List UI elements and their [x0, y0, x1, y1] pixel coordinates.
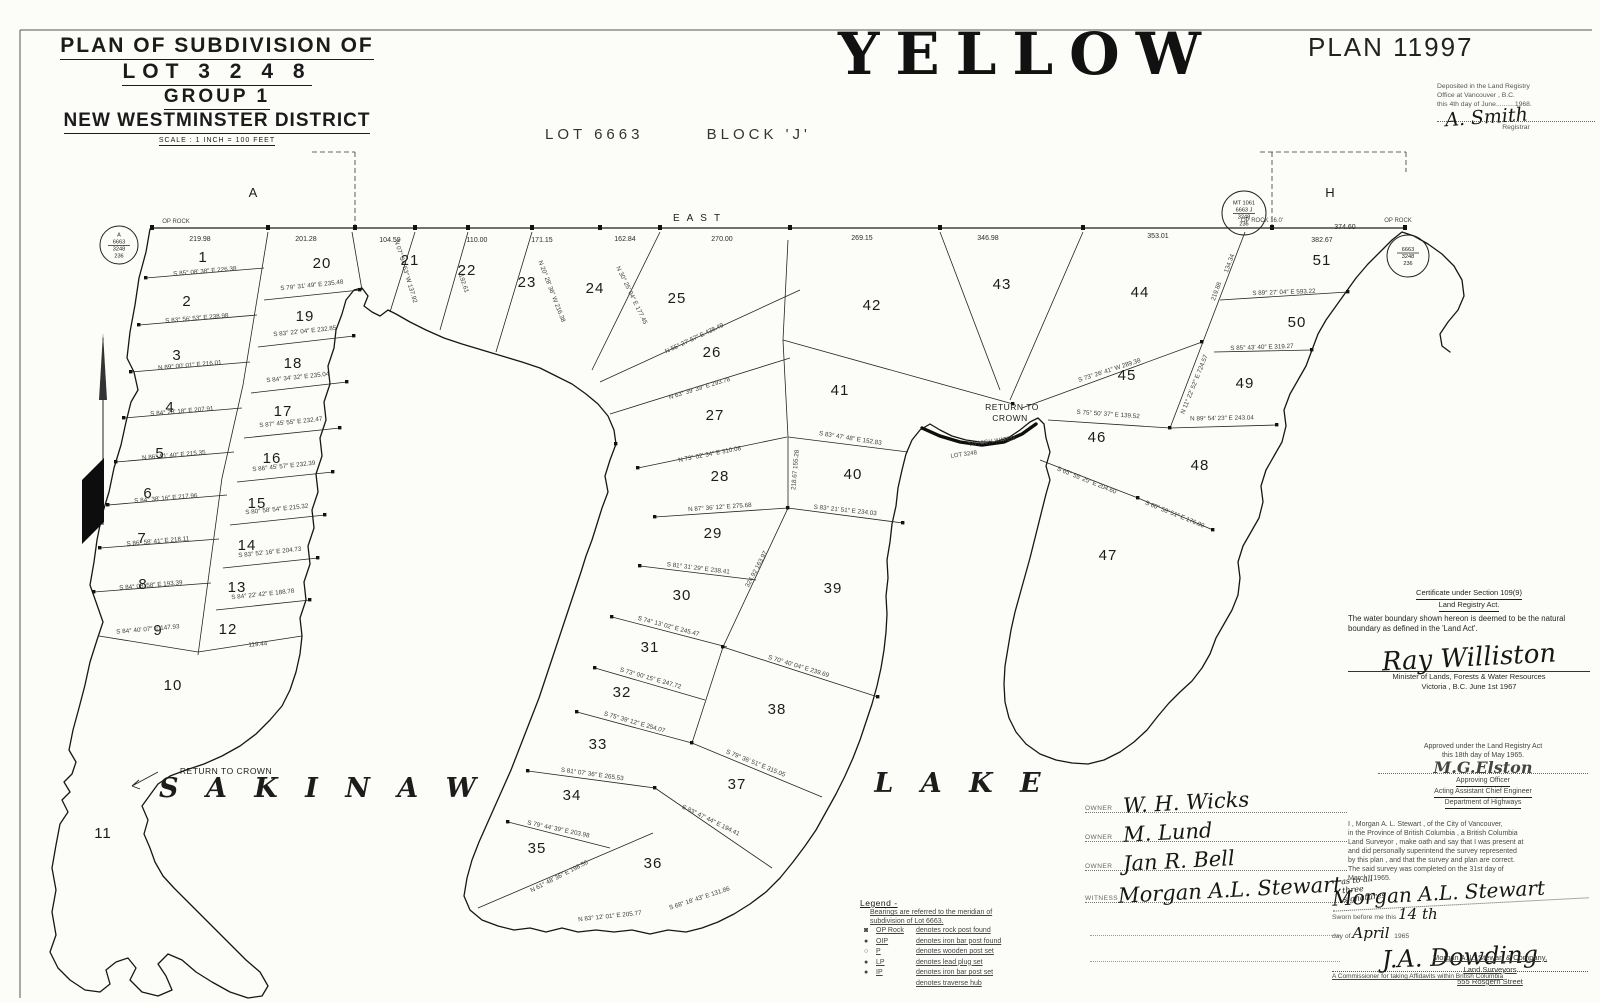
map-text: 353.01 [1147, 233, 1169, 240]
lot-number: 36 [644, 855, 663, 872]
surveyor-affidavit: I , Morgan A. L. Stewart , of the City o… [1348, 820, 1596, 883]
lot-number: 29 [704, 525, 723, 542]
map-text: N 73° 02' 34″ E 310.08 [678, 444, 743, 464]
certificate-body: The water boundary shown hereon is deeme… [1348, 614, 1590, 633]
map-text: OP ROCK [162, 219, 190, 225]
approval-line: Approved under the Land Registry Act [1378, 742, 1588, 751]
map-text: 236 [1403, 261, 1412, 267]
map-text: 382.67 [1311, 237, 1333, 244]
legend-symbol-icon: ○ [864, 947, 876, 958]
map-text: 218.67 155.28 [790, 449, 801, 490]
owner-signatures-block: OWNERW. H. WicksOWNERM. LundOWNERJan R. … [1085, 788, 1347, 907]
legend-abbr: LP [876, 958, 916, 969]
blank-signature-line [1090, 960, 1340, 962]
legend-note-2: subdivision of Lot 6663. [870, 917, 1040, 926]
map-text: S 79° 36' 51″ E 315.05 [725, 748, 787, 779]
lot-number: 24 [586, 280, 605, 297]
block-label: BLOCK 'J' [707, 126, 811, 143]
lot-number: 12 [219, 621, 238, 638]
affidavit-line: The said survey was completed on the 31s… [1348, 865, 1596, 874]
map-text: N 89° 54' 23″ E 243.04 [1190, 413, 1254, 422]
legend-row: ●OIPdenotes iron bar post found [864, 937, 1040, 948]
map-text: RETURN TO CROWN [180, 766, 272, 776]
plan-number: PLAN 11997 [1308, 32, 1474, 63]
lot-number: 41 [831, 382, 850, 399]
signature-row: OWNERW. H. Wicks [1085, 788, 1347, 813]
deposit-block: Deposited in the Land Registry Office at… [1437, 82, 1595, 132]
map-text: MT 1061 [1233, 201, 1255, 207]
legend-text: denotes iron bar post set [916, 968, 1040, 979]
legend-row: denotes traverse hub [864, 979, 1040, 990]
map-text: N 61° 48' 36″ E 198.56 [529, 858, 590, 894]
lot-number: 50 [1288, 314, 1307, 331]
deposit-line: Office at Vancouver , B.C. [1437, 91, 1595, 100]
certificate-act: Land Registry Act. [1439, 600, 1500, 612]
map-text: S 79° 31' 49″ E 235.48 [280, 278, 344, 293]
lot-number: 32 [613, 684, 632, 701]
map-text: H [1325, 185, 1334, 200]
map-text: N 63° 39' 39″ E 293.78 [668, 375, 732, 401]
map-text: 219.98 [189, 236, 211, 243]
legend-symbol-icon: ● [864, 958, 876, 969]
legend-text: denotes wooden post set [916, 947, 1040, 958]
map-text: 6663 [1402, 247, 1414, 253]
map-text: 346.98 [977, 235, 999, 242]
map-text: S 84° 40' 07″ E 147.93 [116, 622, 180, 636]
legend-block: Legend - Bearings are referred to the me… [860, 898, 1040, 989]
map-text: S 86° 58' 41″ E 218.11 [126, 534, 190, 547]
map-text: S 89° 27' 04″ E 593.22 [1252, 287, 1316, 297]
map-text: S 84° 28' 18″ E 207.91 [150, 404, 214, 418]
lot-number: 43 [993, 276, 1012, 293]
title-line-2: LOT 3 2 4 8 [122, 60, 311, 86]
lot-number: 31 [641, 639, 660, 656]
map-text: S 83° 22' 04″ E 232.85 [273, 324, 337, 339]
map-text: S 83° 47' 48″ E 152.83 [818, 429, 882, 447]
map-text: S 83° 56' 53″ E 238.98 [165, 311, 229, 325]
map-text: S 68° 18' 43″ E 131.86 [668, 884, 731, 911]
plan-big-title: YELLOW [838, 20, 1217, 88]
approval-role-1: Approving Officer [1456, 776, 1510, 787]
legend-abbr: P [876, 947, 916, 958]
signature-row: WITNESSMorgan A.L. Stewartas to all thre… [1085, 875, 1347, 903]
owner-signature: Jan R. Bell [1123, 840, 1348, 876]
title-block: PLAN OF SUBDIVISION OF LOT 3 2 4 8 GROUP… [34, 34, 400, 146]
lot-number: 38 [768, 701, 787, 718]
lot-number: 11 [94, 825, 112, 842]
title-line-3: GROUP 1 [164, 86, 270, 110]
map-text: 119.44 [248, 640, 268, 649]
signature-role-label: OWNER [1085, 805, 1123, 812]
lot-number: 42 [863, 297, 882, 314]
map-text: A [117, 233, 121, 239]
lot-label: LOT 6663 [545, 126, 643, 143]
legend-abbr [876, 979, 916, 990]
map-text: OP ROCK [1384, 218, 1412, 224]
legend-row: ●IPdenotes iron bar post set [864, 968, 1040, 979]
legend-row: ●LPdenotes lead plug set [864, 958, 1040, 969]
map-text: S 60° 58' 51″ E 176.80 [1144, 499, 1206, 530]
affidavit-line: I , Morgan A. L. Stewart , of the City o… [1348, 820, 1596, 829]
legend-symbol-icon: ● [864, 937, 876, 948]
lot-number: 44 [1131, 284, 1150, 301]
title-line-4: NEW WESTMINSTER DISTRICT [64, 110, 371, 134]
lot-number: 34 [563, 787, 582, 804]
lot-number: 47 [1099, 547, 1118, 564]
deposit-line: Deposited in the Land Registry [1437, 82, 1595, 91]
lot-number: 28 [711, 468, 730, 485]
legend-text: denotes traverse hub [916, 979, 1040, 990]
legend-abbr: OIP [876, 937, 916, 948]
legend-abbr: IP [876, 968, 916, 979]
company-name: Morgan A. L. Stewart & Company, [1390, 952, 1590, 964]
map-text: 3248 [1402, 254, 1414, 260]
map-text: CROWN [992, 413, 1028, 423]
sworn-year: 1965 [1394, 933, 1409, 940]
map-text: S 75° 50' 37″ E 139.52 [1076, 408, 1140, 420]
water-boundary-certificate: Certificate under Section 109(9) Land Re… [1348, 588, 1590, 692]
map-text: RETURN TO [985, 402, 1039, 412]
affidavit-line: and did personally superintend the surve… [1348, 847, 1596, 856]
map-text: N 20° 28' 36″ W 216.38 [536, 259, 567, 323]
highways-approval-block: Approved under the Land Registry Act thi… [1378, 742, 1588, 809]
legend-note-1: Bearings are referred to the meridian of [870, 908, 1040, 917]
map-text: 236 [114, 254, 123, 260]
legend-text: denotes lead plug set [916, 958, 1040, 969]
map-text: S 81° 31' 29″ E 238.41 [666, 560, 730, 576]
legend-text: denotes rock post found [916, 926, 1040, 937]
signature-row: OWNERM. Lund [1085, 817, 1347, 842]
lot-number: 25 [668, 290, 687, 307]
sworn-line-2: day of [1332, 933, 1352, 940]
map-text: N 11° 22' 52″ E 724.57 [1179, 353, 1210, 415]
lot-number: 51 [1313, 252, 1332, 269]
map-text: S 65° 55' 25″ E 204.60 [1056, 465, 1118, 496]
blank-signature-line [1090, 934, 1340, 936]
map-text: 219.88 [1210, 281, 1223, 302]
map-text: 6663 [113, 240, 125, 246]
map-text: 6663 J [1236, 208, 1253, 214]
legend-title: Legend - [860, 898, 1040, 908]
map-text: 324.92 163.97 [744, 549, 769, 588]
north-arrow-icon [82, 333, 107, 544]
lot-number: 33 [589, 736, 608, 753]
lot-number: 49 [1236, 375, 1255, 392]
company-address: 555 Rosgern Street [1390, 976, 1590, 988]
affidavit-line: Land Surveyor , make oath and say that I… [1348, 838, 1596, 847]
sworn-line-1: Sworn before me this [1332, 914, 1398, 921]
lot-number: 30 [673, 587, 692, 604]
map-text: N 30° 25' 04″ E 177.45 [614, 265, 649, 326]
map-text: EAST [673, 213, 727, 224]
lot-number: 17 [274, 403, 293, 420]
map-text: 269.15 [851, 235, 873, 242]
legend-rows: ◙OP Rockdenotes rock post found●OIPdenot… [860, 926, 1040, 989]
legend-row: ○Pdenotes wooden post set [864, 947, 1040, 958]
map-text: N 89° 00' 01″ E 216.01 [158, 358, 223, 372]
approval-role-3: Department of Highways [1445, 798, 1522, 809]
lot-number: 18 [284, 355, 303, 372]
certificate-date: Victoria , B.C. June 1st 1967 [1348, 682, 1590, 692]
map-text: N 86° 51' 40″ E 215.35 [142, 448, 207, 462]
owner-signature: Morgan A.L. Stewart [1118, 872, 1343, 908]
map-text: 110.00 [467, 237, 488, 244]
approving-officer-signature: M.G.Elston [1378, 763, 1588, 772]
map-text: S A K I N A W [159, 773, 485, 804]
survey-plan-page: { "header": { "title_line1": "PLAN OF SU… [0, 0, 1600, 1003]
legend-symbol-icon: ● [864, 968, 876, 979]
map-text: 270.00 [711, 236, 733, 243]
map-text: 201.28 [295, 236, 317, 243]
sworn-month-script: April [1352, 924, 1389, 942]
legend-abbr: OP Rock [876, 926, 916, 937]
signature-role-label: WITNESS [1085, 895, 1118, 902]
map-text: S 85° 08' 38″ E 226.38 [173, 264, 237, 278]
map-text: 162.84 [614, 236, 636, 243]
lot-number: 20 [313, 255, 332, 272]
lot-block-heading: LOT 6663 BLOCK 'J' [545, 126, 866, 143]
survey-company-block: Morgan A. L. Stewart & Company, Land Sur… [1390, 952, 1590, 988]
affidavit-line: by this plan , and that the survey and p… [1348, 856, 1596, 865]
map-text: S 75° 39' 12″ E 254.07 [603, 709, 667, 734]
lot-number: 26 [703, 344, 722, 361]
company-role: Land Surveyors [1390, 964, 1590, 976]
map-text: OP ROCK 16.0' [1241, 218, 1283, 224]
map-text: S 86° 45' 57″ E 232.39 [252, 459, 316, 474]
lot-number: 3 [172, 347, 181, 364]
lot-number: 40 [844, 466, 863, 483]
affidavit-line: in the Province of British Columbia , a … [1348, 829, 1596, 838]
map-text: 134.34 [1223, 253, 1236, 274]
signature-role-label: OWNER [1085, 834, 1123, 841]
lot-number: 48 [1191, 457, 1210, 474]
legend-row: ◙OP Rockdenotes rock post found [864, 926, 1040, 937]
title-line-1: PLAN OF SUBDIVISION OF [60, 34, 374, 60]
scale-note: SCALE : 1 INCH = 100 FEET [159, 137, 275, 146]
lot-number: 27 [706, 407, 725, 424]
signature-role-label: OWNER [1085, 863, 1123, 870]
lot-number: 1 [198, 249, 207, 266]
map-text: N 07° 34' 53″ W 137.92 [393, 239, 420, 304]
map-text: 374.60 [1334, 224, 1356, 231]
map-text: S 83° 47' 44″ E 194.41 [681, 803, 742, 838]
map-text: S 84° 08' 58″ E 193.39 [119, 578, 183, 592]
map-text: L A K E [873, 768, 1049, 799]
lot-number: 2 [182, 293, 191, 310]
certificate-title: Certificate under Section 109(9) [1416, 588, 1522, 600]
map-text: 3248 [113, 247, 125, 253]
legend-symbol-icon: ◙ [864, 926, 876, 937]
map-text: 171.15 [531, 237, 553, 244]
lot-number: 39 [824, 580, 843, 597]
legend-text: denotes iron bar post found [916, 937, 1040, 948]
map-text: N 83° 12' 01″ E 205.77 [578, 909, 643, 924]
map-text: S 70° 40' 04″ E 239.69 [767, 653, 830, 679]
lot-number: 46 [1088, 429, 1107, 446]
lot-number: 37 [728, 776, 747, 793]
legend-symbol-icon [864, 979, 876, 990]
approval-role-2: Acting Assistant Chief Engineer [1434, 787, 1532, 798]
lot-number: 23 [518, 274, 537, 291]
lot-number: 10 [164, 677, 183, 694]
signature-row: OWNERJan R. Bell [1085, 846, 1347, 871]
map-text: TO HIGH WATER [968, 436, 1017, 449]
lot-number: 35 [528, 840, 547, 857]
map-text: LOT 3248 [950, 450, 978, 460]
lot-number: 19 [296, 308, 315, 325]
map-text: A [249, 185, 258, 200]
return-to-crown-leader [132, 772, 158, 789]
